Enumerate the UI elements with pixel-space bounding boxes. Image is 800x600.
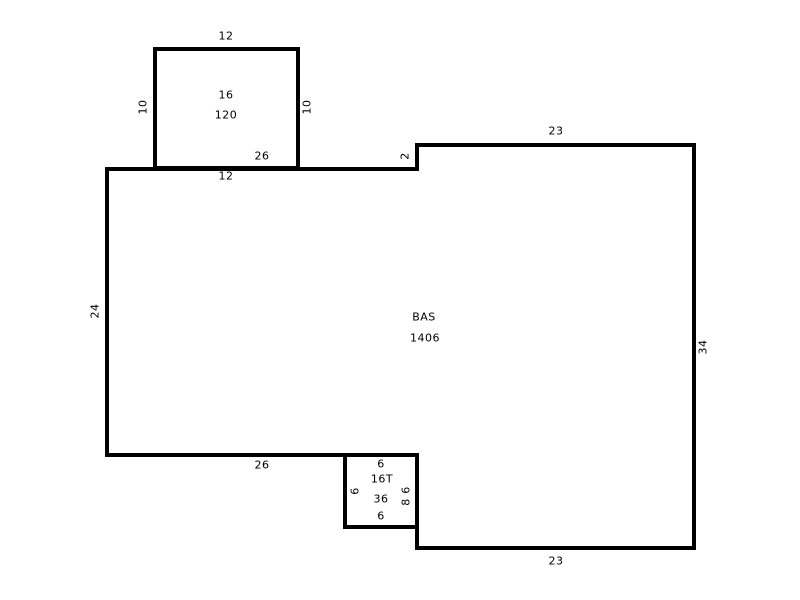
dimension-label: 12 <box>219 30 234 43</box>
area-name-label: 16 <box>219 89 234 102</box>
dimension-label: 6 <box>349 487 362 495</box>
dimension-label: 8 <box>400 498 413 506</box>
dimension-label: 26 <box>255 150 270 163</box>
dimension-label: 6 <box>377 458 385 471</box>
dimension-label: 2 <box>399 152 412 160</box>
dimension-label: 10 <box>301 100 314 115</box>
dimension-label: 23 <box>549 125 564 138</box>
dimension-label: 12 <box>219 170 234 183</box>
sketch-svg: 1210101612026122233424BAS140626616T36666… <box>0 0 800 600</box>
dimension-label: 34 <box>697 340 710 355</box>
floor-plan-sketch: 1210101612026122233424BAS140626616T36666… <box>0 0 800 600</box>
dimension-label: 24 <box>89 304 102 319</box>
dimension-label: 6 <box>377 510 385 523</box>
dimension-label: 26 <box>255 459 270 472</box>
dimension-label: 6 <box>400 486 413 494</box>
area-name-label: 16T <box>371 473 393 486</box>
area-name-label: BAS <box>412 311 436 324</box>
area-size-label: 36 <box>374 493 389 506</box>
dimension-label: 10 <box>137 100 150 115</box>
area-size-label: 120 <box>215 109 238 122</box>
dimension-label: 23 <box>549 555 564 568</box>
area-size-label: 1406 <box>410 332 440 345</box>
